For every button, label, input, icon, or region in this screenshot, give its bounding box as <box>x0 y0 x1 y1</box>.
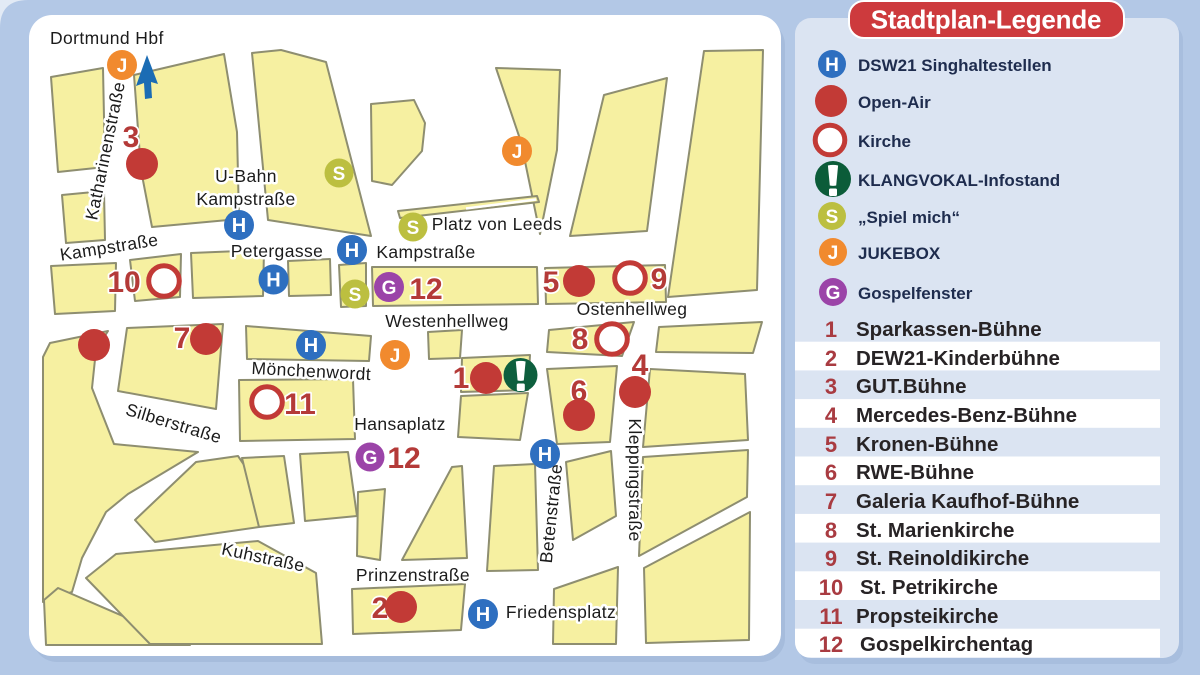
svg-text:5: 5 <box>543 266 560 299</box>
svg-text:2: 2 <box>825 346 837 371</box>
svg-text:S: S <box>333 164 346 185</box>
svg-text:Open-Air: Open-Air <box>858 93 931 112</box>
svg-text:Hansaplatz: Hansaplatz <box>354 414 446 434</box>
svg-text:DSW21 Singhaltestellen: DSW21 Singhaltestellen <box>858 56 1052 75</box>
svg-text:J: J <box>390 346 401 367</box>
svg-text:Westenhellweg: Westenhellweg <box>385 311 509 331</box>
svg-text:Ostenhellweg: Ostenhellweg <box>577 299 688 319</box>
svg-text:H: H <box>304 335 318 357</box>
svg-text:12: 12 <box>409 273 442 306</box>
svg-text:H: H <box>825 55 839 76</box>
svg-text:DEW21-Kinderbühne: DEW21-Kinderbühne <box>856 347 1060 370</box>
svg-text:8: 8 <box>572 323 589 356</box>
svg-text:H: H <box>538 444 552 466</box>
svg-text:12: 12 <box>387 442 420 475</box>
svg-text:12: 12 <box>819 632 843 657</box>
svg-text:J: J <box>512 142 523 163</box>
svg-text:JUKEBOX: JUKEBOX <box>858 244 941 263</box>
svg-text:G: G <box>826 283 841 304</box>
svg-text:U-Bahn: U-Bahn <box>215 166 277 186</box>
svg-text:1: 1 <box>825 317 837 342</box>
svg-text:Platz von Leeds: Platz von Leeds <box>432 214 563 234</box>
svg-text:H: H <box>476 604 490 626</box>
svg-text:GUT.Bühne: GUT.Bühne <box>856 375 966 398</box>
svg-text:Friedensplatz: Friedensplatz <box>506 602 616 622</box>
svg-text:9: 9 <box>651 263 668 296</box>
svg-text:H: H <box>345 240 359 262</box>
svg-text:Petergasse: Petergasse <box>231 241 324 261</box>
svg-text:3: 3 <box>825 374 837 399</box>
svg-text:11: 11 <box>284 388 316 421</box>
svg-text:11: 11 <box>819 604 842 629</box>
svg-text:Gospelkirchentag: Gospelkirchentag <box>860 633 1033 656</box>
svg-text:Kronen-Bühne: Kronen-Bühne <box>856 433 998 456</box>
svg-text:J: J <box>117 56 128 77</box>
svg-text:7: 7 <box>174 322 191 355</box>
svg-text:Stadtplan-Legende: Stadtplan-Legende <box>871 5 1102 35</box>
svg-text:Kampstraße: Kampstraße <box>376 242 475 262</box>
svg-text:Gospelfenster: Gospelfenster <box>858 284 973 303</box>
svg-text:RWE-Bühne: RWE-Bühne <box>856 461 974 484</box>
svg-text:Mercedes-Benz-Bühne: Mercedes-Benz-Bühne <box>856 404 1077 427</box>
svg-text:S: S <box>826 207 839 228</box>
svg-text:Propsteikirche: Propsteikirche <box>856 605 998 628</box>
svg-text:„Spiel mich“: „Spiel mich“ <box>858 208 960 227</box>
svg-text:St. Reinoldikirche: St. Reinoldikirche <box>856 547 1029 570</box>
svg-text:Kirche: Kirche <box>858 132 911 151</box>
svg-text:5: 5 <box>825 432 837 457</box>
svg-text:4: 4 <box>825 403 838 428</box>
svg-text:G: G <box>363 448 378 469</box>
svg-text:Sparkassen-Bühne: Sparkassen-Bühne <box>856 318 1042 341</box>
svg-text:St. Petrikirche: St. Petrikirche <box>860 576 998 599</box>
svg-text:Kleppingstraße: Kleppingstraße <box>625 418 645 541</box>
svg-text:H: H <box>232 215 246 237</box>
svg-text:J: J <box>828 243 839 264</box>
svg-text:S: S <box>349 285 362 306</box>
svg-text:Kampstraße: Kampstraße <box>196 189 295 209</box>
svg-text:9: 9 <box>825 546 837 571</box>
svg-text:6: 6 <box>825 460 837 485</box>
svg-text:Galeria Kaufhof-Bühne: Galeria Kaufhof-Bühne <box>856 490 1079 513</box>
svg-text:H: H <box>266 270 280 292</box>
svg-text:Dortmund Hbf: Dortmund Hbf <box>50 28 164 48</box>
svg-text:G: G <box>382 278 397 299</box>
svg-text:1: 1 <box>453 362 470 395</box>
svg-text:10: 10 <box>107 266 140 299</box>
svg-text:8: 8 <box>825 518 837 543</box>
svg-text:10: 10 <box>819 575 843 600</box>
svg-text:S: S <box>407 218 420 239</box>
svg-text:7: 7 <box>825 489 837 514</box>
svg-text:St. Marienkirche: St. Marienkirche <box>856 519 1014 542</box>
svg-text:KLANGVOKAL-Infostand: KLANGVOKAL-Infostand <box>858 171 1060 190</box>
svg-text:Prinzenstraße: Prinzenstraße <box>356 565 470 585</box>
